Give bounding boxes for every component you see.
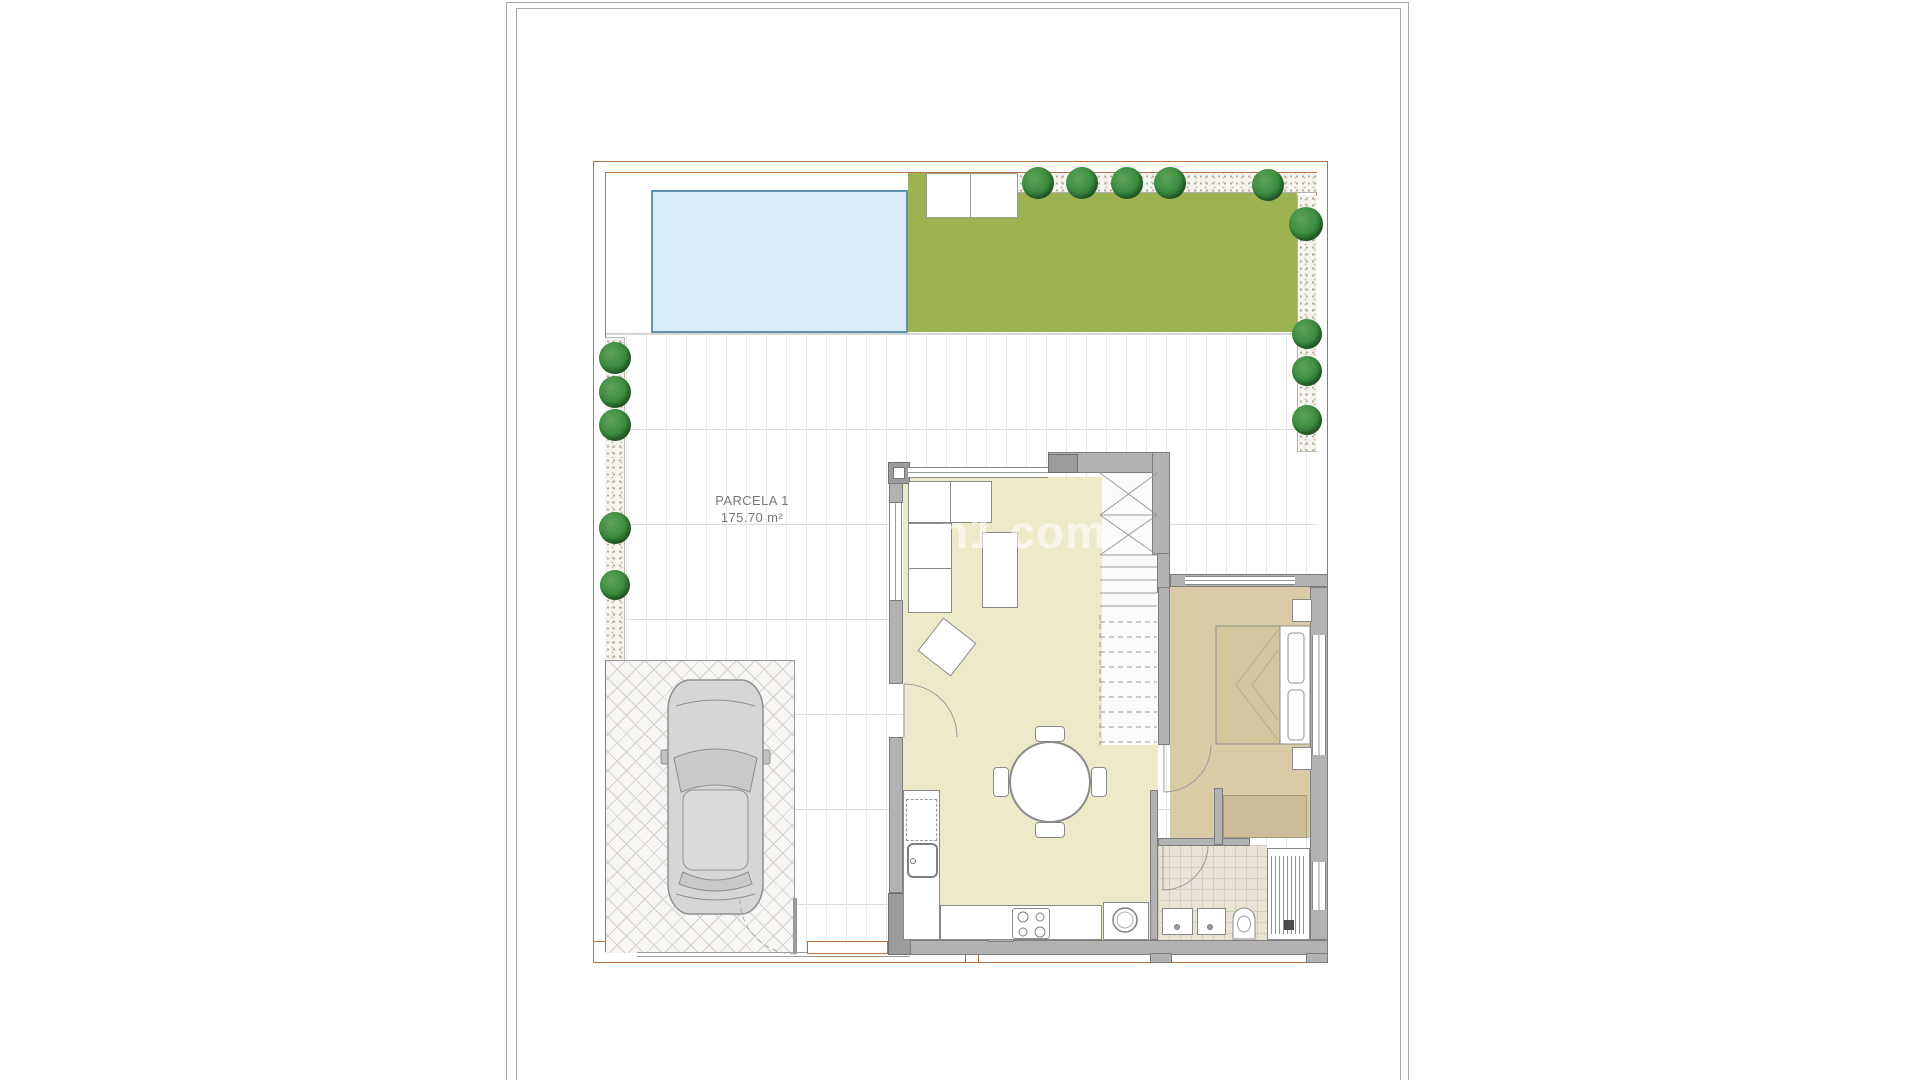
pillar-inset (893, 467, 905, 479)
nightstand (1292, 747, 1312, 770)
parcel-name: PARCELA 1 (687, 492, 817, 509)
tree-icon (1292, 356, 1322, 386)
wall-foot (1150, 953, 1172, 963)
bathroom-east-window (1312, 862, 1326, 910)
west-wall (889, 737, 903, 893)
dining-chair (993, 767, 1009, 797)
watermark: n1.com (940, 505, 1107, 559)
bathroom-north-wall (1158, 838, 1250, 846)
north-wall-segment (1048, 454, 1078, 473)
staircase-area (1100, 473, 1157, 745)
wall-foot (1306, 953, 1328, 963)
dining-table (1009, 741, 1091, 823)
lawn (926, 218, 1018, 332)
tree-icon (599, 376, 631, 408)
bathroom-sink (1162, 908, 1193, 935)
lawn (908, 173, 926, 332)
hall-bath-wall (1150, 790, 1158, 940)
swimming-pool (651, 190, 908, 333)
shower-grate (1271, 856, 1306, 934)
tree-icon (1154, 167, 1186, 199)
garden-shed (926, 173, 1018, 218)
tree-icon (599, 512, 631, 544)
tree-icon (599, 342, 631, 374)
bedroom-closet-wall (1214, 788, 1223, 845)
tree-icon (1111, 167, 1143, 199)
bedroom-west-wall (1158, 587, 1170, 745)
parcel-area: 175.70 m² (687, 509, 817, 526)
bathroom-sink (1197, 908, 1226, 935)
garage-paving (606, 660, 795, 953)
tree-icon (1252, 169, 1284, 201)
tree-icon (600, 570, 630, 600)
entrance-threshold (807, 941, 888, 954)
kitchen-sink (907, 843, 938, 878)
dishwasher (906, 799, 937, 841)
hob (1012, 908, 1050, 939)
stair-pillar (1152, 452, 1170, 555)
dining-chair (1091, 767, 1107, 797)
tree-icon (1289, 207, 1323, 241)
living-west-window (889, 503, 902, 602)
tree-icon (1292, 319, 1322, 349)
bedroom-north-window (1185, 576, 1295, 585)
floor-plan-canvas: PARCELA 1 175.70 m² n1.com (0, 0, 1920, 1080)
tree-icon (599, 409, 631, 441)
bedroom-east-window (1312, 635, 1326, 755)
west-wall (889, 600, 903, 684)
tree-icon (1066, 167, 1098, 199)
lawn (1018, 193, 1297, 332)
tree-icon (1022, 167, 1054, 199)
tree-icon (1292, 405, 1322, 435)
nightstand (1292, 599, 1312, 622)
living-north-window (908, 467, 1048, 478)
south-wall (910, 940, 1328, 955)
dining-chair (1035, 726, 1065, 742)
washing-machine (1103, 902, 1149, 940)
west-wall (889, 483, 903, 503)
bedroom-dresser (1223, 795, 1307, 838)
dining-chair (1035, 822, 1065, 838)
parcel-label-block: PARCELA 1 175.70 m² (687, 492, 817, 526)
